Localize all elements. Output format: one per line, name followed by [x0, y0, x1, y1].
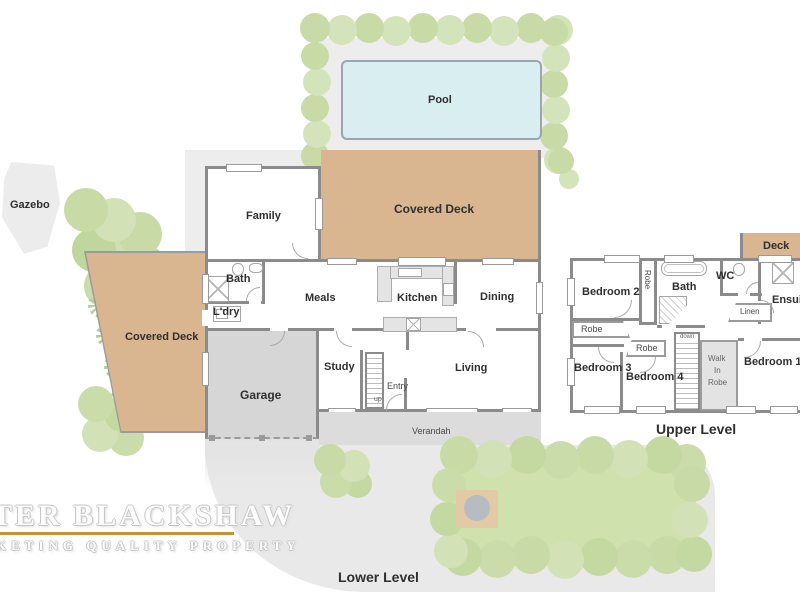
- hedge-col-right: [540, 18, 568, 46]
- bedroom4-label: Bedroom 4: [626, 371, 683, 383]
- robe-bedroom2-label: Robe: [581, 324, 603, 334]
- stairs-down-label: down: [680, 334, 694, 340]
- walk-in-robe-line1: Walk: [708, 354, 725, 363]
- bedroom3-label: Bedroom 3: [574, 362, 631, 374]
- bedroom3-top-wall: [570, 344, 624, 347]
- covered-deck-label: Covered Deck: [394, 202, 474, 216]
- bedroom1-window-bottom: [726, 406, 756, 414]
- garden-feature-fountain: [464, 495, 490, 521]
- bedroom3-window-bottom: [584, 406, 620, 414]
- watermark-line2: KETING QUALITY PROPERTY: [0, 538, 301, 554]
- tree-cluster-gazebo: [64, 188, 108, 232]
- kitchen-sink: [398, 268, 422, 277]
- ensuite-label: Ensuite: [772, 294, 800, 306]
- deck-slider-door: [398, 257, 446, 266]
- linen-label: Linen: [740, 307, 760, 316]
- garage-window-left: [202, 352, 209, 386]
- family-window-right: [315, 198, 323, 230]
- island-stub-wall: [406, 332, 409, 350]
- dining-label: Dining: [480, 291, 514, 303]
- bathtub-inner: [664, 264, 704, 273]
- garden-hedge-bottom: [444, 538, 482, 576]
- garage-door-post: [209, 435, 215, 441]
- bath-window-left: [202, 274, 209, 304]
- ensuite-left-wall: [758, 261, 761, 301]
- deck-slider-upper: [758, 255, 792, 263]
- bedroom2-window-left: [567, 278, 575, 306]
- bedroom4-window-bottom: [636, 406, 666, 414]
- shrub-cluster-deck: [78, 386, 114, 422]
- meals-label: Meals: [305, 292, 336, 304]
- lower-level-label: Lower Level: [338, 569, 419, 585]
- floor-plan: Gazebo Covered Deck Covered Deck Pool Fa…: [0, 0, 800, 600]
- garage-door-post: [259, 435, 265, 441]
- dining-window-top: [482, 258, 514, 265]
- bath-door-gap: [249, 301, 261, 304]
- bedroom34-wall: [620, 352, 623, 412]
- laundry-label: L'dry: [213, 306, 239, 318]
- garden-hedge-right: [674, 466, 710, 502]
- deck-right-wall: [538, 150, 541, 262]
- laundry-door-gap: [202, 310, 209, 326]
- bath-upper-label: Bath: [672, 281, 696, 293]
- hedge-row-top: [300, 13, 330, 43]
- basin: [249, 263, 263, 273]
- wc-toilet: [733, 263, 745, 276]
- bedroom2-label: Bedroom 2: [582, 286, 639, 298]
- covered-deck-side-label: Covered Deck: [125, 331, 198, 343]
- watermark-line1: TER BLACKSHAW: [0, 499, 295, 533]
- watermark-rule: [0, 532, 234, 535]
- shrub-cluster-verandah: [314, 444, 346, 476]
- kitchen-label: Kitchen: [397, 292, 437, 304]
- robe-bedroom4-label: Robe: [636, 343, 658, 353]
- robe-strip-right-wall: [654, 261, 657, 325]
- entry-label: Entry: [387, 381, 408, 391]
- study-label: Study: [324, 361, 355, 373]
- pool-label: Pool: [428, 94, 452, 106]
- gazebo-label: Gazebo: [10, 199, 50, 211]
- walk-in-robe-line2: In: [714, 366, 721, 375]
- kitchen-dining-wall: [454, 262, 457, 304]
- kitchen-living-stub: [368, 328, 384, 331]
- garage-door-post: [306, 435, 312, 441]
- stove: [443, 283, 454, 296]
- upper-deck-label: Deck: [763, 240, 789, 252]
- bedroom2-window-top: [604, 255, 640, 263]
- hedge-col-left: [301, 42, 329, 70]
- stairs-up-label: up: [374, 396, 382, 403]
- study-right-wall: [360, 350, 363, 412]
- bedroom2-bottom-wall: [570, 318, 642, 321]
- upper-deck-left-wall: [740, 233, 743, 260]
- bath-window-top: [664, 255, 694, 263]
- family-label: Family: [246, 210, 281, 222]
- robe-strip-bottom-wall: [639, 322, 657, 325]
- meals-window-top: [327, 258, 357, 265]
- walk-in-robe-line3: Robe: [708, 378, 727, 387]
- island-sink: [406, 318, 421, 331]
- ensuite-shower: [772, 262, 794, 284]
- dining-window-right: [536, 282, 543, 314]
- verandah-label: Verandah: [412, 426, 451, 436]
- garage-room: [205, 331, 319, 439]
- hedge-corner-tuft: [548, 148, 574, 174]
- bedroom1-label: Bedroom 1: [744, 356, 800, 368]
- wc-label: WC: [716, 270, 734, 282]
- living-label: Living: [455, 362, 487, 374]
- bath-door-gap-upper: [662, 325, 676, 328]
- bath-label: Bath: [226, 273, 250, 285]
- upper-level-label: Upper Level: [656, 421, 736, 437]
- dining-living-wall: [496, 328, 541, 331]
- bedroom1-window-bottom2: [770, 406, 798, 414]
- family-window-top: [226, 164, 262, 172]
- walk-in-robe: [700, 340, 738, 411]
- robe-hall-label: Robe: [643, 270, 652, 310]
- driveway: [205, 439, 319, 491]
- garage-label: Garage: [240, 388, 281, 402]
